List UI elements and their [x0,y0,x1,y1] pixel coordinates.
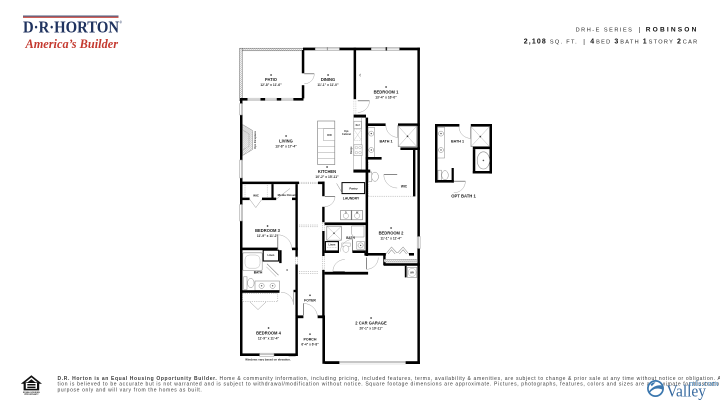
svg-text:Pantry: Pantry [349,187,358,191]
svg-text:BATH 1: BATH 1 [379,139,392,143]
svg-text:11'-1" x 11'-0": 11'-1" x 11'-0" [317,83,339,87]
svg-text:BEDROOM 3: BEDROOM 3 [255,228,281,233]
svg-text:2 CAR GARAGE: 2 CAR GARAGE [355,321,387,326]
svg-text:11'-9" x 11'-4": 11'-9" x 11'-4" [258,337,280,341]
svg-text:America’s Builder: America’s Builder [25,36,119,51]
svg-text:DW: DW [327,133,332,137]
svg-text:13'-4" x 16'-0": 13'-4" x 16'-0" [375,96,397,100]
svg-text:BEDROOM 1: BEDROOM 1 [374,90,400,95]
svg-text:D: D [345,211,347,214]
svg-text:DRH-E SERIES | ROBINSON: DRH-E SERIES | ROBINSON [576,26,699,33]
svg-text:Range: Range [350,146,353,154]
svg-text:LAUNDRY: LAUNDRY [343,196,360,200]
svg-text:Linen: Linen [328,243,335,247]
svg-text:13'-8" x 17'-4": 13'-8" x 17'-4" [275,145,297,149]
svg-text:Opt. Fireplace: Opt. Fireplace [253,131,257,149]
svg-text:WIC: WIC [401,184,408,188]
svg-text:Linen: Linen [267,253,274,257]
svg-text:Windows vary based on elevatio: Windows vary based on elevation. [245,358,291,362]
svg-text:FOYER: FOYER [304,299,316,303]
svg-text:KITCHEN: KITCHEN [318,169,336,174]
svg-text:BEDROOM 2: BEDROOM 2 [379,231,405,236]
svg-text:12'-8" x 11'-6": 12'-8" x 11'-6" [260,83,282,87]
svg-text:WIC: WIC [253,194,260,198]
svg-text:BEDROOM 4: BEDROOM 4 [256,331,282,336]
svg-text:DINING: DINING [321,77,335,82]
svg-text:TV: TV [358,73,361,76]
svg-text:OPT BATH 1: OPT BATH 1 [451,193,476,198]
svg-text:11'-1" x 11'-4": 11'-1" x 11'-4" [380,237,402,241]
svg-text:Cabinet: Cabinet [342,133,351,136]
svg-text:D·R·HORTON: D·R·HORTON [23,18,120,37]
svg-text:PORCH: PORCH [304,338,317,342]
svg-text:20'-1" x 19'-11": 20'-1" x 19'-11" [359,327,383,331]
svg-text:WH: WH [410,272,414,275]
svg-text:OPPORTUNITY: OPPORTUNITY [24,394,39,396]
svg-text:PATIO: PATIO [265,77,278,82]
svg-text:mls.com: mls.com [689,378,719,388]
svg-text:LIVING: LIVING [279,139,293,144]
svg-text:purpose only and will vary fro: purpose only and will vary from the home… [58,387,203,393]
svg-text:BATH: BATH [254,270,263,274]
svg-text:10'-2" x 15'-11": 10'-2" x 15'-11" [315,175,339,179]
svg-text:6'-4" x 6'-8": 6'-4" x 6'-8" [301,343,319,347]
svg-text:11'-9" x 11'-2": 11'-9" x 11'-2" [257,234,279,238]
svg-text:BATH 1: BATH 1 [451,139,464,143]
svg-text:Ref: Ref [356,124,360,127]
svg-text:2,108 SQ. FT. | 4 BED 3 BA: 2,108 SQ. FT. | 4 BED 3 BATH 1 STORY 2 C… [524,39,699,46]
